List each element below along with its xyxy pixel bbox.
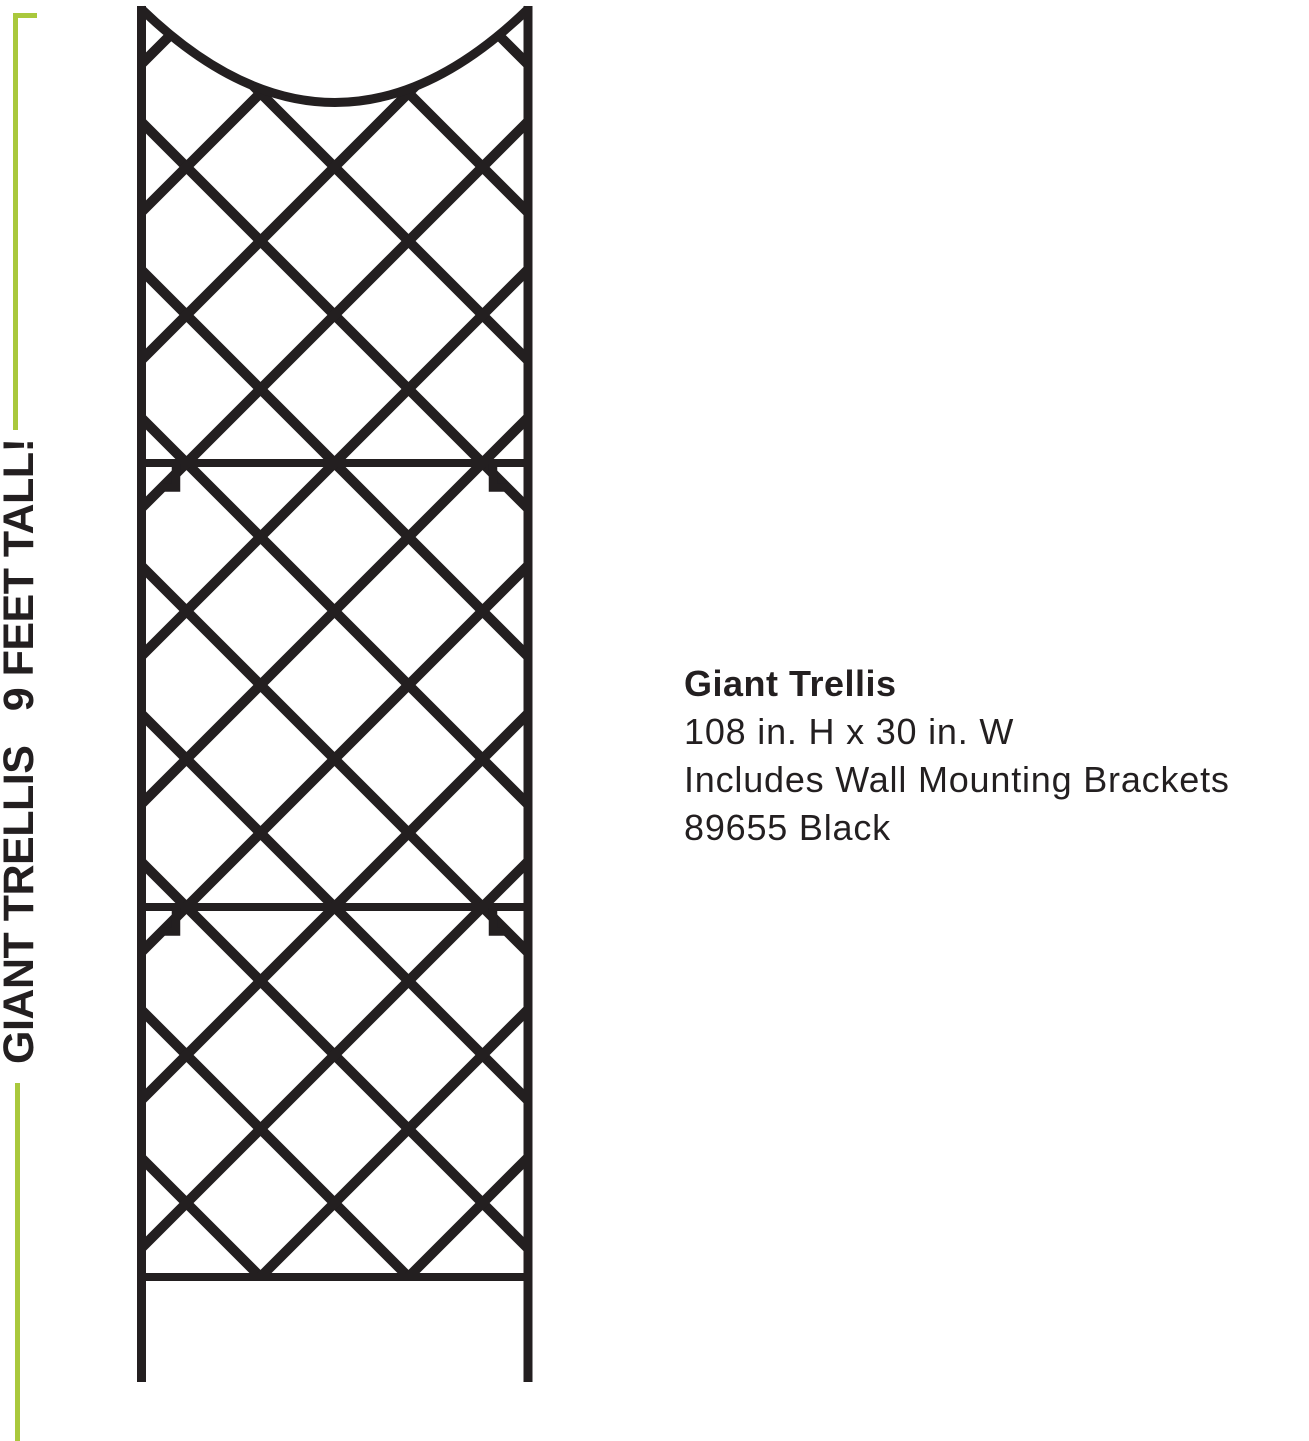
lattice-diagonals-up (139, 0, 531, 1441)
product-title: Giant Trellis (684, 660, 1230, 708)
product-dimensions: 108 in. H x 30 in. W (684, 708, 1230, 756)
product-sku: 89655 Black (684, 804, 1230, 852)
trellis-lattice (139, 0, 531, 1441)
product-includes: Includes Wall Mounting Brackets (684, 756, 1230, 804)
product-copy-block: Giant Trellis 108 in. H x 30 in. W Inclu… (684, 660, 1230, 852)
lattice-diagonals-down (139, 0, 531, 1441)
trellis-illustration (0, 0, 600, 1441)
trellis-arch (142, 9, 529, 103)
